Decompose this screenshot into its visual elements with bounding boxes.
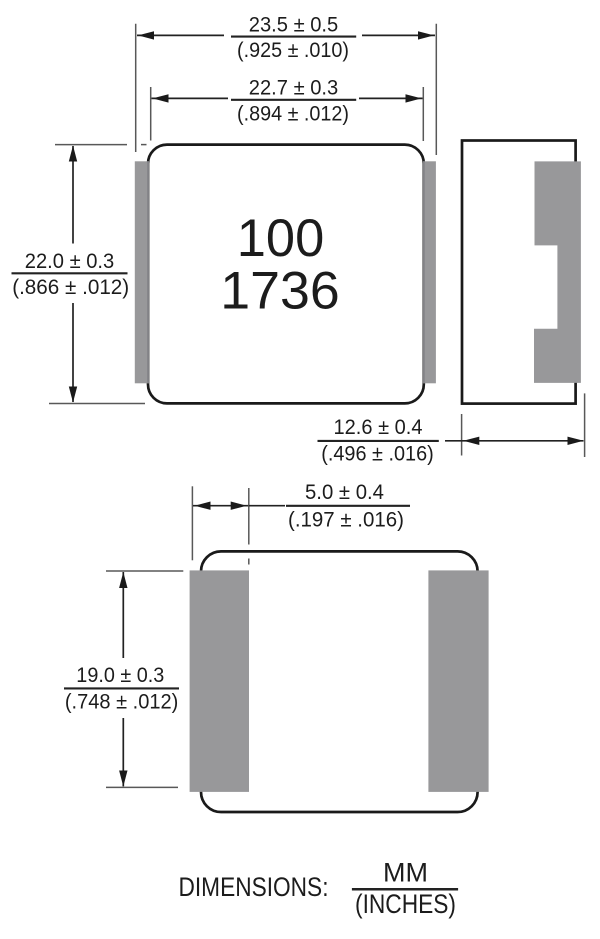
svg-text:23.5 ± 0.5: 23.5 ± 0.5 xyxy=(249,14,339,37)
svg-text:12.6 ± 0.4: 12.6 ± 0.4 xyxy=(334,416,423,439)
svg-text:DIMENSIONS:: DIMENSIONS: xyxy=(179,872,329,902)
svg-text:(.894 ± .012): (.894 ± .012) xyxy=(237,103,349,126)
svg-text:19.0 ± 0.3: 19.0 ± 0.3 xyxy=(76,664,164,687)
svg-text:22.0 ± 0.3: 22.0 ± 0.3 xyxy=(25,250,115,273)
svg-text:(.925 ± .010): (.925 ± .010) xyxy=(237,39,349,62)
svg-text:(.496 ± .016): (.496 ± .016) xyxy=(321,443,434,466)
svg-text:(.748 ± .012): (.748 ± .012) xyxy=(65,690,179,713)
svg-text:5.0 ± 0.4: 5.0 ± 0.4 xyxy=(305,481,384,504)
svg-text:(.197 ± .016): (.197 ± .016) xyxy=(288,509,404,532)
svg-text:1736: 1736 xyxy=(220,262,340,321)
svg-text:(INCHES): (INCHES) xyxy=(355,889,456,919)
svg-text:MM: MM xyxy=(383,858,428,888)
svg-text:22.7 ± 0.3: 22.7 ± 0.3 xyxy=(249,77,339,100)
svg-text:100: 100 xyxy=(237,209,325,268)
svg-text:(.866 ± .012): (.866 ± .012) xyxy=(12,276,129,299)
